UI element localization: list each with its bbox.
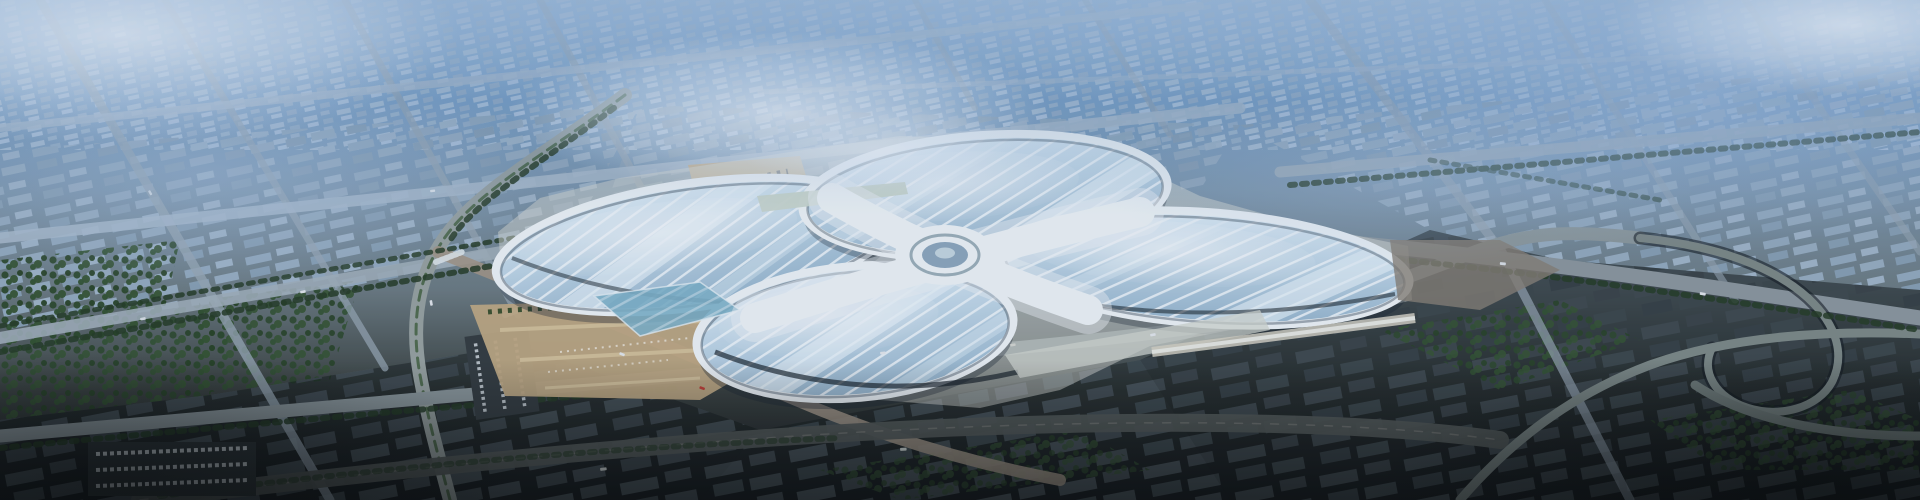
- atmosphere: [0, 0, 1920, 500]
- hero-banner-image: [0, 0, 1920, 500]
- aerial-render-scene: [0, 0, 1920, 500]
